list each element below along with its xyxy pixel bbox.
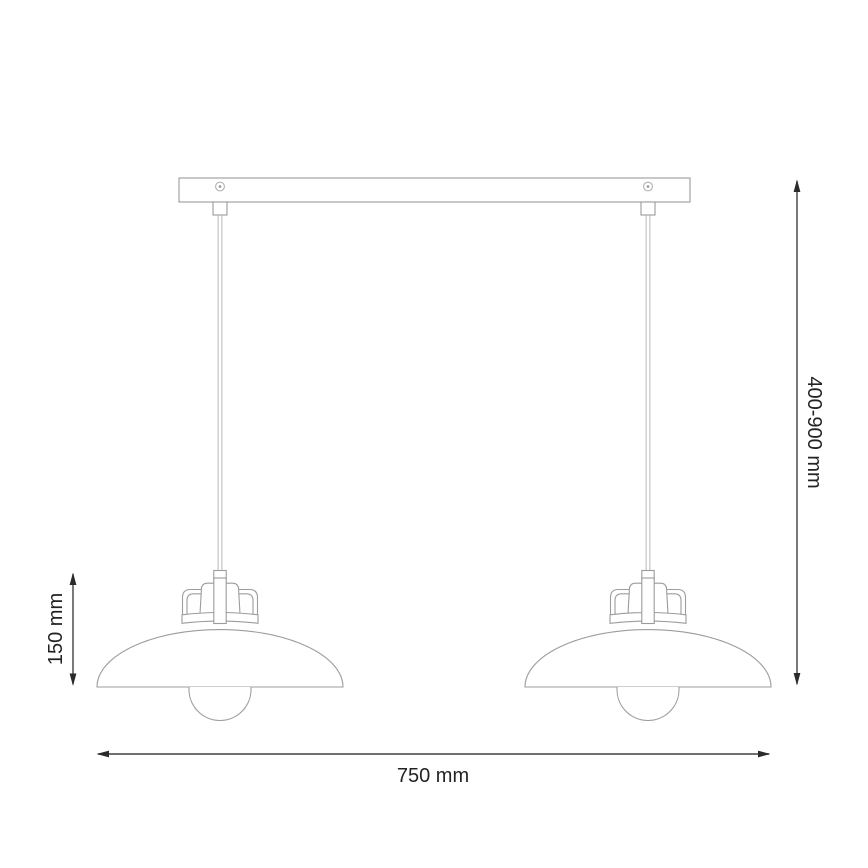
arrow-up-icon: [70, 573, 77, 586]
arrow-up-icon: [794, 180, 801, 193]
diagram-canvas: 400-900 mm 150 mm 750 mm: [0, 0, 868, 868]
dimension-shade-height: 150 mm: [45, 573, 76, 687]
arrow-right-icon: [758, 751, 771, 758]
dimension-overall-width: 750 mm: [97, 751, 771, 787]
pendant-lamp-right: [525, 182, 771, 720]
pendant-lamp-left: [97, 182, 343, 720]
ceiling-mounting-bar: [179, 178, 690, 202]
dimension-label-overall-width: 750 mm: [397, 765, 469, 787]
arrow-left-icon: [97, 751, 110, 758]
dimension-drop-height: 400-900 mm: [794, 180, 825, 686]
dimension-label-drop-height: 400-900 mm: [803, 376, 825, 488]
arrow-down-icon: [70, 674, 77, 687]
pendant-lamp-technical-drawing: 400-900 mm 150 mm 750 mm: [0, 0, 868, 868]
arrow-down-icon: [794, 673, 801, 686]
dimension-label-shade-height: 150 mm: [45, 593, 67, 665]
